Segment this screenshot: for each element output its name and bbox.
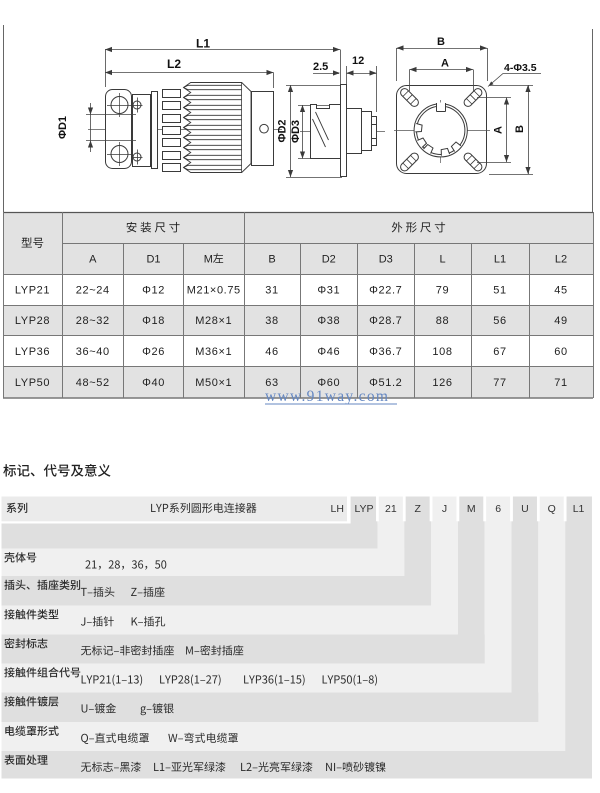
- svg-text:31: 31: [265, 284, 278, 296]
- svg-text:L2: L2: [167, 57, 181, 71]
- svg-text:LYP50: LYP50: [15, 377, 50, 389]
- svg-text:36~40: 36~40: [76, 346, 110, 358]
- svg-text:51: 51: [493, 284, 506, 296]
- svg-text:U: U: [521, 503, 529, 515]
- svg-text:L1: L1: [573, 503, 585, 515]
- svg-text:71: 71: [554, 377, 567, 389]
- svg-text:49: 49: [554, 315, 567, 327]
- svg-text:L: L: [439, 254, 445, 266]
- svg-text:46: 46: [265, 346, 278, 358]
- svg-text:M36×1: M36×1: [195, 346, 232, 358]
- svg-text:Φ40: Φ40: [142, 377, 165, 389]
- svg-text:28~32: 28~32: [76, 315, 110, 327]
- svg-text:LYP28: LYP28: [15, 315, 50, 327]
- svg-text:12: 12: [352, 55, 364, 67]
- svg-text:6: 6: [495, 503, 501, 515]
- svg-text:108: 108: [432, 346, 452, 358]
- svg-text:A: A: [493, 126, 505, 134]
- svg-text:B: B: [437, 36, 445, 48]
- svg-text:D2: D2: [322, 254, 336, 266]
- svg-text:L2: L2: [555, 254, 567, 266]
- svg-text:22~24: 22~24: [76, 284, 110, 296]
- svg-text:L1: L1: [494, 254, 506, 266]
- svg-text:L1: L1: [196, 37, 210, 51]
- svg-text:4-Φ3.5: 4-Φ3.5: [504, 62, 537, 74]
- svg-text:88: 88: [436, 315, 449, 327]
- svg-text:A: A: [441, 57, 449, 69]
- svg-text:48~52: 48~52: [76, 377, 110, 389]
- svg-text:B: B: [514, 125, 526, 133]
- svg-text:Φ28.7: Φ28.7: [369, 315, 402, 327]
- svg-text:Φ38: Φ38: [317, 315, 340, 327]
- svg-text:Q: Q: [548, 503, 556, 515]
- svg-text:Φ12: Φ12: [142, 284, 165, 296]
- svg-text:LYP21: LYP21: [15, 284, 50, 296]
- svg-text:M: M: [204, 254, 213, 266]
- svg-text:Φ31: Φ31: [317, 284, 340, 296]
- svg-text:Φ46: Φ46: [317, 346, 340, 358]
- svg-text:38: 38: [265, 315, 278, 327]
- svg-text:ΦD3: ΦD3: [290, 120, 302, 143]
- svg-text:B: B: [268, 254, 275, 266]
- svg-text:Z: Z: [414, 503, 421, 515]
- svg-text:D1: D1: [146, 254, 160, 266]
- svg-text:ΦD2: ΦD2: [277, 119, 289, 142]
- svg-text:45: 45: [554, 284, 567, 296]
- svg-text:Φ36.7: Φ36.7: [369, 346, 402, 358]
- svg-text:Φ22.7: Φ22.7: [369, 284, 402, 296]
- svg-text:126: 126: [432, 377, 452, 389]
- svg-text:ΦD1: ΦD1: [57, 116, 69, 139]
- svg-text:D3: D3: [379, 254, 393, 266]
- svg-text:67: 67: [493, 346, 506, 358]
- svg-text:M50×1: M50×1: [195, 377, 232, 389]
- svg-text:56: 56: [493, 315, 506, 327]
- svg-text:M: M: [467, 503, 476, 515]
- svg-text:60: 60: [554, 346, 567, 358]
- svg-text:LH: LH: [331, 503, 344, 515]
- svg-text:LYP: LYP: [354, 503, 373, 515]
- svg-text:M21×0.75: M21×0.75: [187, 284, 241, 296]
- svg-text:21: 21: [385, 503, 397, 515]
- svg-text:LYP36: LYP36: [15, 346, 50, 358]
- svg-text:2.5: 2.5: [313, 61, 328, 73]
- svg-text:M28×1: M28×1: [195, 315, 232, 327]
- svg-text:J: J: [442, 503, 447, 515]
- svg-text:www.91way.com: www.91way.com: [265, 388, 389, 405]
- svg-text:Φ18: Φ18: [142, 315, 165, 327]
- svg-text:Φ26: Φ26: [142, 346, 165, 358]
- svg-text:A: A: [89, 254, 97, 266]
- svg-text:77: 77: [493, 377, 506, 389]
- svg-text:79: 79: [436, 284, 449, 296]
